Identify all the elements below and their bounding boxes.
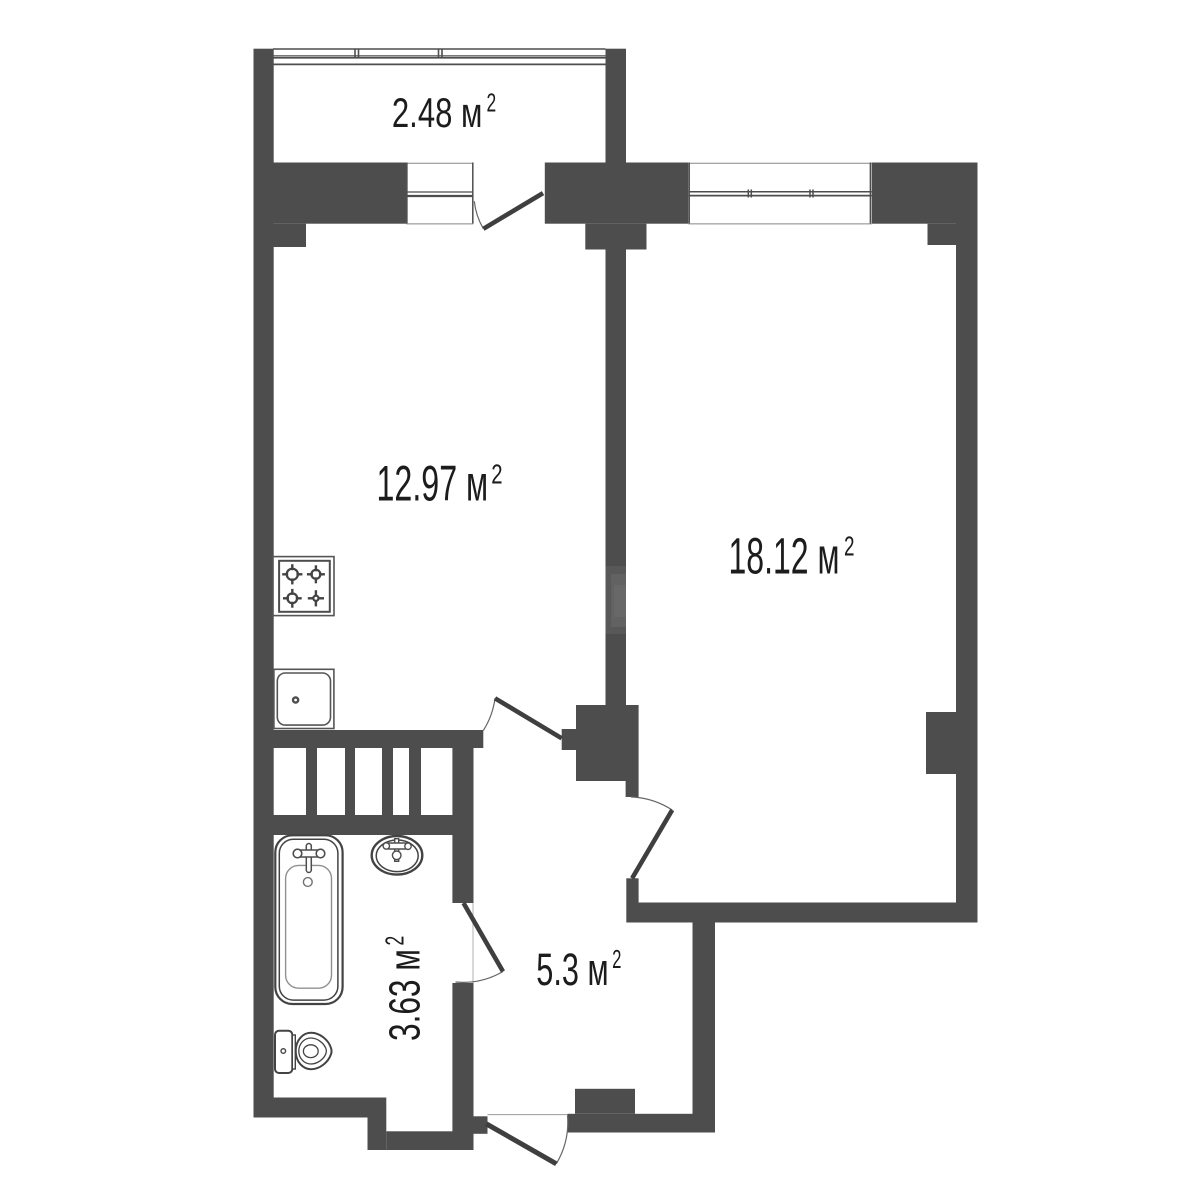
svg-text:2: 2: [487, 87, 497, 117]
svg-text:2: 2: [491, 459, 502, 490]
svg-text:2: 2: [379, 936, 409, 946]
svg-text:3.63 м: 3.63 м: [381, 949, 430, 1041]
svg-text:12.97 м: 12.97 м: [377, 456, 489, 512]
svg-text:2: 2: [612, 944, 621, 974]
svg-text:2.48 м: 2.48 м: [392, 89, 483, 136]
svg-text:18.12 м: 18.12 м: [729, 528, 840, 585]
svg-text:5.3 м: 5.3 м: [536, 944, 608, 995]
svg-text:2: 2: [844, 531, 855, 562]
